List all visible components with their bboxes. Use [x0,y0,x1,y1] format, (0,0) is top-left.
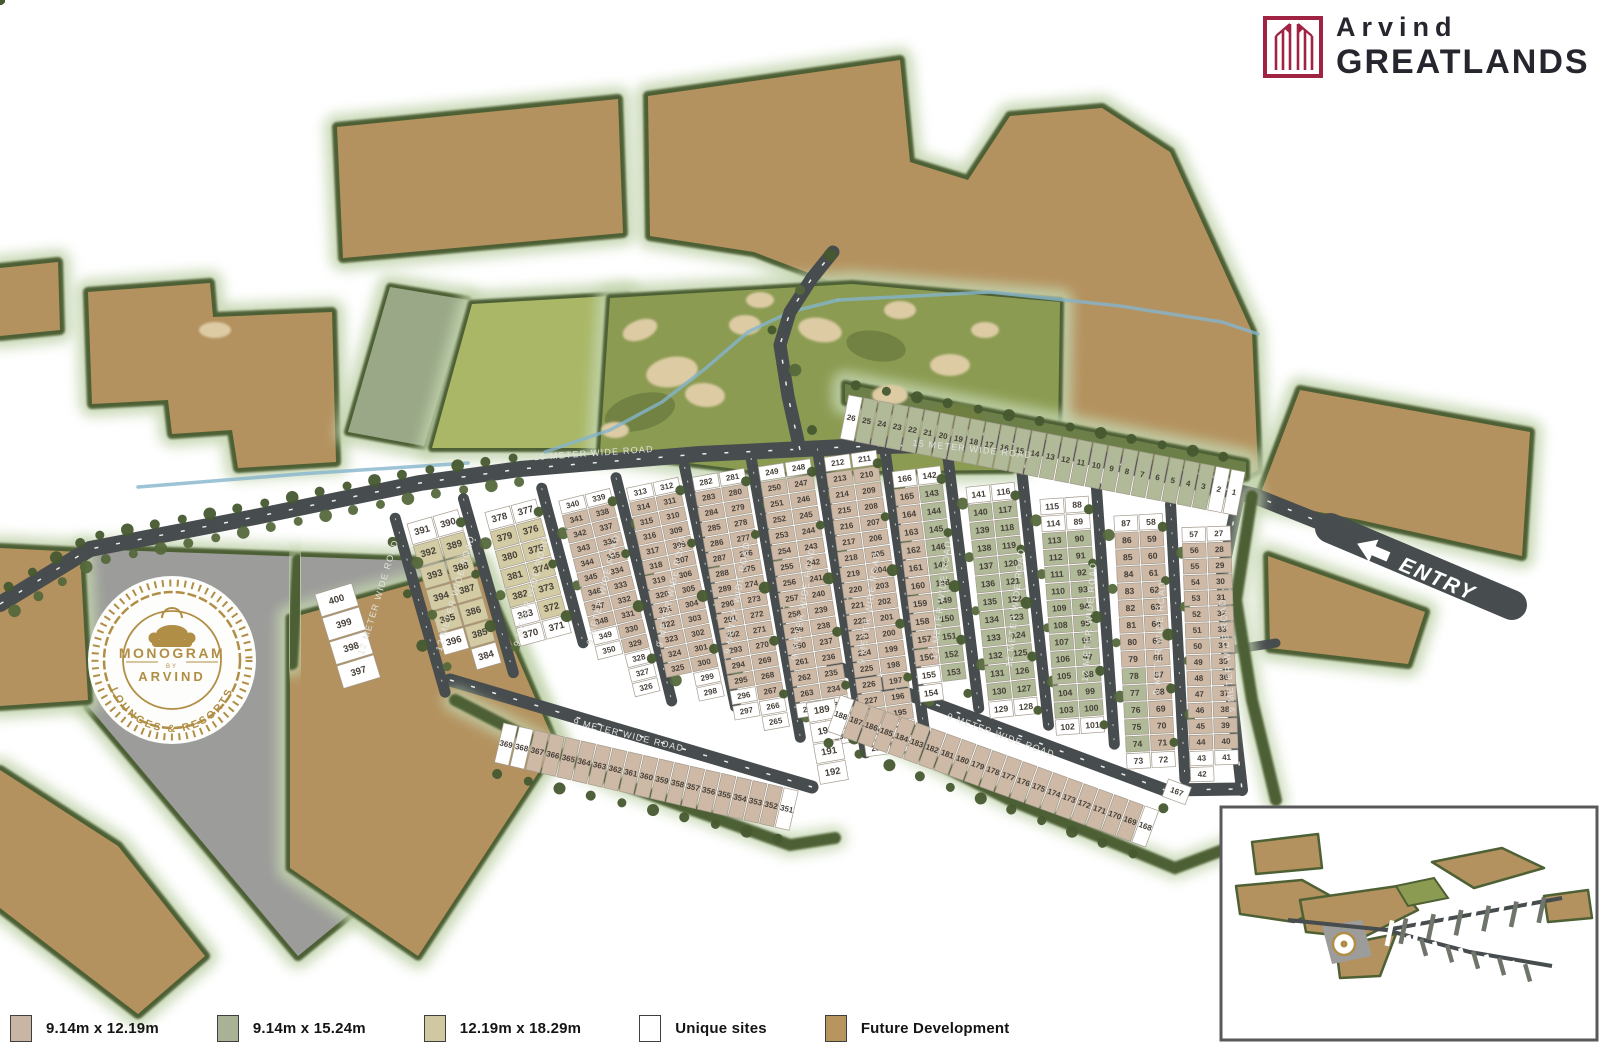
plot-number: 126 [1015,665,1031,676]
plot-number: 42 [1198,770,1208,779]
plot-number: 129 [993,703,1009,714]
tree [4,582,14,592]
map-legend: 9.14m x 12.19m 9.14m x 15.24m 12.19m x 1… [10,1015,1009,1042]
plot-number: 132 [988,650,1004,661]
tree [343,482,352,491]
plot-number: 84 [1124,569,1134,579]
legend-label: 12.19m x 18.29m [460,1020,581,1037]
plot-number: 145 [928,523,944,535]
plot-number: 39 [1221,721,1231,730]
tree [0,0,5,5]
tree [552,781,566,795]
plot-number: 163 [904,526,920,538]
plot-number: 72 [1158,754,1168,764]
tree [294,517,303,526]
plot-number: 153 [946,666,962,678]
tree [8,604,21,617]
plot-number: 141 [971,489,987,500]
tree [882,758,897,773]
tree [348,505,358,515]
brand-name: Arvind [1336,14,1590,41]
tree [50,551,63,564]
plot-number: 119 [1002,540,1017,551]
sand-bunker [930,354,970,376]
tree [315,487,325,497]
plot-number: 103 [1059,704,1074,715]
tree [913,770,926,783]
legend-swatch [639,1015,661,1042]
monogram-brand: ARVIND [138,669,206,684]
plot-number: 83 [1124,586,1134,596]
plot-number: 154 [923,687,939,699]
sand-bunker [746,292,774,308]
sand-bunker [729,315,761,335]
plot-number: 76 [1131,705,1141,715]
plot-number: 77 [1130,688,1140,698]
plot-number: 165 [899,490,915,502]
plot-number: 89 [1073,516,1083,527]
plot-number: 43 [1197,754,1207,763]
plot-number: 41 [1222,753,1232,762]
plot-number: 130 [992,685,1008,696]
plot-number: 53 [1191,594,1201,603]
plot-number: 151 [942,630,958,642]
legend-swatch [217,1015,239,1042]
plot-number: 208 [864,501,879,512]
tree [178,515,187,524]
plot-number: 49 [1194,658,1204,667]
plot-number: 58 [1146,517,1156,527]
plot-number: 207 [866,517,881,528]
plot-number: 114 [1046,518,1061,529]
tree [154,542,167,555]
plot-number: 28 [1215,545,1225,554]
plot-number: 111 [1050,569,1064,580]
tree [459,485,468,494]
plot-number: 88 [1072,499,1082,510]
inset-monogram-dot [1341,941,1348,948]
plot-number: 102 [1060,721,1075,732]
tree [95,531,104,540]
land-region [337,99,623,258]
plot-number: 50 [1193,642,1203,651]
plot-number: 48 [1194,674,1204,683]
plot-number: 128 [1018,701,1034,712]
tree [150,519,160,529]
plot-number: 115 [1045,501,1060,512]
plot-number: 105 [1056,670,1071,681]
tree [451,459,464,472]
tree [585,790,597,802]
plot-number: 29 [1215,561,1225,570]
legend-label: Future Development [861,1020,1010,1037]
plot-number: 57 [1189,530,1199,539]
plot-number: 196 [891,691,906,702]
plot-number: 214 [835,489,850,500]
tree [260,498,269,507]
tree [425,465,434,474]
plot-number: 100 [1084,703,1099,714]
plot-number: 201 [880,612,895,623]
tree [431,489,441,499]
plot-number: 162 [906,544,922,556]
legend-item-plot-small: 9.14m x 12.19m [10,1015,159,1042]
plot-number: 109 [1052,603,1067,614]
tree [211,533,220,542]
tree [183,538,193,548]
brand-sub-name: GREATLANDS [1336,45,1590,79]
plot-number: 197 [888,675,903,686]
legend-item-plot-large: 12.19m x 18.29m [424,1015,581,1042]
legend-label: Unique sites [675,1020,767,1037]
arvind-logo-icon [1262,10,1324,84]
tree [789,364,802,377]
legend-swatch [10,1015,32,1042]
monogram-resort-logo: MONOGRAMBYARVINDLOUNGES & RESORTS [88,576,256,744]
plot-number: 138 [976,542,992,553]
tree-line [292,560,298,664]
plot-number: 118 [1000,522,1015,533]
tree [480,457,490,467]
inset-land [1544,890,1592,922]
plot-number: 101 [1085,720,1100,731]
tree [75,538,85,548]
plot-number: 140 [973,506,989,517]
plot-number: 144 [926,505,942,517]
plot-number: 113 [1047,535,1062,546]
plot-number: 80 [1127,637,1137,647]
tree [266,522,276,532]
plot-number: 116 [996,486,1011,497]
plot-number: 220 [848,584,863,595]
tree [237,526,250,539]
plot-number: 70 [1157,720,1167,730]
tree [514,477,524,487]
tree [824,249,837,262]
sand-bunker [199,322,231,338]
plot-number: 81 [1126,620,1136,630]
inset-land [1252,834,1322,874]
plot-number: 56 [1190,546,1200,555]
overview-inset-map[interactable] [1221,807,1597,1040]
tree [616,797,627,808]
plot-number: 202 [877,596,892,607]
plot-number: 159 [912,598,928,610]
plot-number: 60 [1148,551,1158,561]
plot-number: 161 [908,562,924,574]
tree [402,492,415,505]
legend-swatch [825,1015,847,1042]
plot-number: 155 [921,669,937,681]
site-plan-page: 4003993983973913923933943953963903893883… [0,0,1600,1048]
plot-number: 158 [915,616,931,628]
plot-number: 45 [1196,722,1206,731]
plot-number: 90 [1074,533,1084,544]
monogram-logo: MONOGRAMBYARVINDLOUNGES & RESORTS [88,576,256,744]
plot-number: 104 [1058,687,1073,698]
plot-number: 219 [846,568,861,579]
tree [319,509,332,522]
plot-number: 75 [1132,722,1142,732]
plot-number: 46 [1195,706,1205,715]
plot-number: 47 [1195,690,1205,699]
plot-number: 226 [862,679,877,690]
plot-number: 200 [882,628,897,639]
plot-number: 78 [1129,671,1139,681]
tree [129,549,138,558]
plot-number: 213 [833,473,848,484]
tree [33,591,43,601]
tree [1157,802,1170,815]
tree [232,503,242,513]
plot-number: 217 [842,537,857,548]
tree [80,561,93,574]
tree [101,554,111,564]
legend-label: 9.14m x 15.24m [253,1020,366,1037]
tree [376,500,385,509]
plot-number: 218 [844,552,859,563]
plot-number: 135 [982,596,998,607]
plot-number: 55 [1190,562,1200,571]
plot-number: 131 [990,668,1006,679]
tree [368,474,381,487]
legend-item-plot-medium: 9.14m x 15.24m [217,1015,366,1042]
plot-number: 137 [978,560,994,571]
plot-number: 73 [1133,756,1143,766]
plot-number: 69 [1156,703,1166,713]
legend-swatch [424,1015,446,1042]
plot-number: 198 [886,660,901,671]
plot-number: 107 [1054,637,1069,648]
plot-number: 117 [998,504,1013,515]
plot-number: 85 [1123,552,1133,562]
plot-number: 134 [984,614,1000,625]
tree [485,480,498,493]
sand-bunker [884,301,916,319]
plot-number: 108 [1053,620,1068,631]
plot-number: 199 [884,644,899,655]
plot-number: 206 [868,533,883,544]
plot-number: 52 [1192,610,1202,619]
plot-number: 143 [924,487,940,499]
plot-number: 71 [1157,737,1167,747]
plot-number: 133 [986,632,1002,643]
land-region [0,262,60,336]
tree [203,507,216,520]
plot-number: 27 [1214,529,1224,538]
plot-number: 54 [1191,578,1201,587]
tree [768,326,777,335]
plot-number: 209 [862,485,877,496]
plot-number: 160 [910,580,926,592]
plot-number: 74 [1132,739,1142,749]
plot-number: 59 [1147,534,1157,544]
plot-number: 127 [1016,683,1032,694]
plot-number: 44 [1196,738,1206,747]
plot-number: 166 [897,473,913,485]
plot-number: 142 [922,470,938,482]
plot-number: 106 [1055,653,1070,664]
plot-number: 99 [1085,686,1095,697]
plot-number: 40 [1221,737,1231,746]
plot-number: 164 [901,508,917,520]
tree [286,491,299,504]
plot-number: 139 [975,524,991,535]
legend-item-unique-sites: Unique sites [639,1015,767,1042]
plot-number: 211 [857,454,872,465]
plot-number: 212 [831,457,846,468]
plot-number: 112 [1048,552,1063,563]
tree [58,577,67,586]
plot-number: 82 [1125,603,1135,613]
tree [28,568,37,577]
plot-number: 91 [1076,550,1086,561]
tree [807,425,817,435]
plot-number: 30 [1216,577,1226,586]
tree [121,523,134,536]
tree [397,470,407,480]
plot-number: 152 [944,648,960,660]
plot-number: 136 [980,578,996,589]
monogram-title: MONOGRAM [119,645,225,661]
plot-number: 92 [1077,567,1087,578]
plot-number: 216 [839,521,854,532]
tree [509,453,518,462]
tree [795,285,805,295]
sand-bunker [971,322,999,338]
plot-number: 87 [1121,518,1131,528]
plot-number: 215 [837,505,852,516]
plot-number: 51 [1193,626,1203,635]
legend-label: 9.14m x 12.19m [46,1020,159,1037]
plot-number: 110 [1051,586,1066,597]
brand-logo: Arvind GREATLANDS [1262,10,1590,84]
plot-number: 210 [859,469,874,480]
plot-number: 79 [1128,654,1138,664]
legend-item-future-development: Future Development [825,1015,1010,1042]
site-map[interactable]: 4003993983973913923933943953963903893883… [0,0,1600,1048]
plot-number: 86 [1122,535,1132,545]
plot-number: 61 [1149,568,1159,578]
